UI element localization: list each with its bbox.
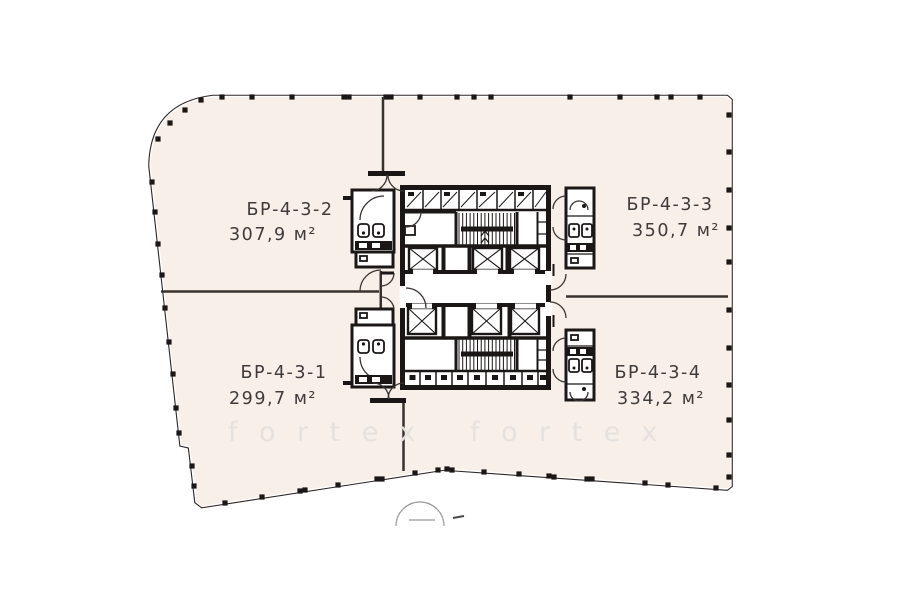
watermark-text: fortex	[228, 417, 437, 448]
scale-symbol	[396, 502, 464, 526]
bathroom-pod-bottom-right	[566, 330, 594, 401]
floor-plan-svg: fortex fortex БР-4-3-2 307,9 м² БР-4-3-3…	[0, 0, 900, 604]
unit-code[interactable]: БР-4-3-1	[241, 363, 328, 383]
unit-area: 334,2 м²	[617, 389, 705, 409]
unit-code[interactable]: БР-4-3-4	[615, 363, 702, 383]
unit-area: 350,7 м²	[632, 221, 720, 241]
unit-code[interactable]: БР-4-3-2	[247, 200, 334, 220]
core	[400, 188, 553, 388]
core-shell	[403, 188, 549, 388]
floor-plan-page: fortex fortex БР-4-3-2 307,9 м² БР-4-3-3…	[0, 0, 900, 604]
bathroom-pod-top-right	[566, 188, 594, 268]
watermark-text-2: fortex	[470, 417, 679, 448]
unit-area: 307,9 м²	[229, 225, 317, 245]
unit-code[interactable]: БР-4-3-3	[627, 195, 714, 215]
unit-area: 299,7 м²	[229, 389, 317, 409]
